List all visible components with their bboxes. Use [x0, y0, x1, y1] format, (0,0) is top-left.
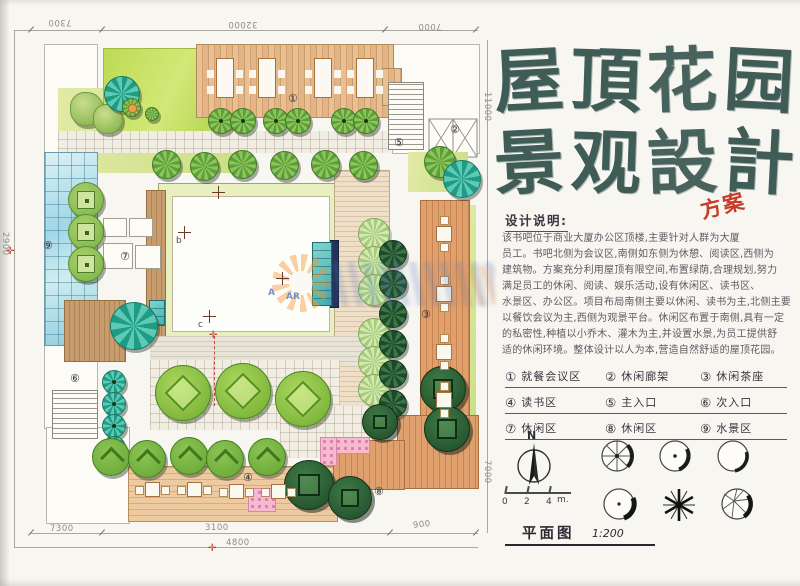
plan-marker: ⑧ [374, 486, 384, 498]
plan-marker: ⑤ [394, 137, 404, 149]
legend-number: ⑧ [605, 421, 616, 436]
tree-icon [110, 302, 158, 350]
title-char: 观 [569, 121, 642, 205]
flower-bed [320, 437, 337, 466]
title-char: 景 [492, 120, 566, 206]
palm-icon [152, 150, 181, 179]
watermark-letter: AR [286, 292, 300, 302]
legend-number: ⑨ [700, 421, 711, 436]
planter-tree-icon [68, 246, 104, 282]
tree-icon [122, 98, 141, 117]
tea-table [436, 344, 452, 360]
seat-box [129, 218, 153, 237]
scale-label: 4 [546, 497, 552, 507]
palm-icon [190, 152, 219, 181]
notes-line: 该书吧位于商业大厦办公区顶楼,主要针对人群为大厦 [502, 229, 798, 244]
tree-icon [102, 370, 126, 394]
watermark-text-blur [452, 266, 496, 306]
dining-table [356, 58, 374, 98]
planter-tree-icon [68, 214, 104, 250]
axis-line [214, 336, 215, 406]
legend-label: 休闲廊架 [621, 368, 669, 384]
notes-line: 的私密性,种植以小乔木、灌木为主,并设置水景,为员工提供舒 [502, 325, 798, 340]
legend-number: ④ [505, 395, 516, 410]
dining-table [216, 58, 234, 98]
legend-row: ④读书区 ⑤主入口 ⑥次入口 [505, 394, 787, 414]
tree-icon [92, 438, 130, 476]
plan-marker: ④ [243, 472, 253, 484]
scale-bar-line [505, 492, 571, 494]
plan-marker: ⑦ [120, 251, 130, 263]
dining-table [258, 58, 276, 98]
tree-symbol-starburst-icon [660, 486, 702, 528]
tree-icon [230, 108, 256, 134]
plan-marker: ⑨ [43, 240, 53, 252]
legend-item: ⑥次入口 [700, 394, 787, 410]
tree-symbol-dot-icon [656, 437, 698, 479]
tree-icon [379, 330, 407, 358]
plan-marker: ① [288, 93, 298, 105]
tree-icon [102, 392, 126, 416]
legend-item: ⑦休闲区 [505, 420, 605, 436]
scale-label: 0 [502, 497, 508, 507]
sheet: 7300 32000 7000 2900 ✛ 11000 7000 7300 3… [0, 0, 800, 586]
section-mark: c [198, 320, 203, 330]
tree-icon [128, 440, 166, 478]
section-mark: b [176, 236, 182, 246]
legend-label: 休闲茶座 [716, 368, 764, 384]
tree-icon [353, 108, 379, 134]
legend-label: 读书区 [521, 394, 557, 410]
title-line-1: 屋 頂 花 园 [494, 40, 794, 122]
tree-icon [284, 460, 334, 510]
legend-number: ⑦ [505, 421, 516, 436]
title-char: 頂 [569, 39, 642, 123]
legend-label: 主入口 [621, 394, 657, 410]
reading-table [145, 482, 160, 497]
legend-row: ①就餐会议区 ②休闲廊架 ③休闲茶座 [505, 368, 787, 388]
palm-icon [311, 150, 340, 179]
seat-box [103, 218, 127, 237]
planter-tree-icon [68, 182, 104, 218]
legend-item: ③休闲茶座 [700, 368, 787, 384]
notes-line: 建筑物。方案充分利用屋顶有限空间,布置绿荫,合理规划,努力 [502, 261, 798, 276]
tree-icon [155, 365, 211, 421]
tree-icon [170, 437, 208, 475]
tree-icon [285, 108, 311, 134]
legend-number: ① [505, 369, 516, 384]
tree-icon [328, 476, 372, 520]
tree-icon [275, 371, 331, 427]
legend-number: ③ [700, 369, 711, 384]
legend-item: ⑧休闲区 [605, 420, 700, 436]
tree-icon [145, 107, 159, 121]
notes-line: 员工。书吧北侧为会议区,南侧如东侧为休憩、阅读区,西侧为 [502, 245, 798, 260]
tree-symbol-dot-shadow-icon [600, 485, 642, 527]
north-arrow-icon [512, 441, 556, 491]
tree-icon [102, 414, 126, 438]
scale-label: 2 [524, 497, 530, 507]
red-mark: ✛ [209, 330, 217, 341]
plan-marker: ② [450, 124, 460, 136]
legend-label: 水景区 [716, 420, 752, 436]
plan-title: 平面图 [522, 522, 575, 543]
notes-line: 以餐饮会议为主,西侧为观景平台。休闲区布置于南侧,具有一定 [502, 309, 798, 324]
plan-marker: ③ [421, 309, 431, 321]
paved-path [58, 131, 390, 153]
legend-item: ①就餐会议区 [505, 368, 605, 384]
title-char: 屋 [492, 38, 566, 124]
legend-number: ⑥ [700, 395, 711, 410]
title-char: 园 [722, 38, 796, 124]
palm-icon [270, 151, 299, 180]
scale-unit: m. [557, 495, 569, 505]
tree-symbol-plain-icon [714, 437, 756, 479]
legend-item: ②休闲廊架 [605, 368, 700, 384]
tea-table [436, 392, 452, 408]
plan-scale: 1:200 [592, 527, 624, 540]
tree-icon [248, 438, 286, 476]
reading-table [187, 482, 202, 497]
watermark-letter: A [268, 288, 275, 298]
tree-symbol-spoked-icon [598, 437, 640, 479]
tea-table [436, 226, 452, 242]
legend-label: 休闲区 [621, 420, 657, 436]
plan-drawing: b c ✛ A AR ① ② ③ ④ ⑤ ⑥ ⑦ ⑧ ⑨ [0, 0, 490, 560]
escape-stair [52, 390, 98, 439]
palm-icon [228, 150, 257, 179]
palm-icon [349, 151, 378, 180]
legend-number: ⑤ [605, 395, 616, 410]
tree-symbol-spoked-shadow-icon [718, 485, 760, 527]
red-mark: ✛ [6, 246, 14, 257]
legend-label: 次入口 [716, 394, 752, 410]
title-line-2: 景 观 設 計 [494, 122, 794, 204]
legend-label: 就餐会议区 [521, 368, 581, 384]
tree-icon [443, 160, 481, 198]
red-mark: ✛ [208, 543, 216, 554]
legend-item: ④读书区 [505, 394, 605, 410]
plan-title-underline [505, 544, 655, 546]
notes-line: 满足员工的休闲、阅读、娱乐活动,设有休闲区、读书区、 [502, 277, 798, 292]
tree-icon [379, 360, 407, 388]
notes-line: 水景区、办公区。项目布局南侧主要以休闲、读书为主,北侧主要 [502, 293, 798, 308]
tree-icon [362, 404, 398, 440]
tree-icon [206, 440, 244, 478]
watermark-logo [272, 254, 330, 312]
reading-table [229, 484, 244, 499]
legend-item: ⑤主入口 [605, 394, 700, 410]
legend-item: ⑨水景区 [700, 420, 787, 436]
legend-number: ② [605, 369, 616, 384]
dining-table [314, 58, 332, 98]
notes-line: 适的休闲环境。整体设计以人为本,营造自然舒适的屋顶花园。 [502, 341, 798, 356]
plan-marker: ⑥ [70, 373, 80, 385]
seat-box [135, 245, 161, 269]
title-char: 花 [646, 39, 719, 123]
reading-table [271, 484, 286, 499]
tree-icon [215, 363, 271, 419]
